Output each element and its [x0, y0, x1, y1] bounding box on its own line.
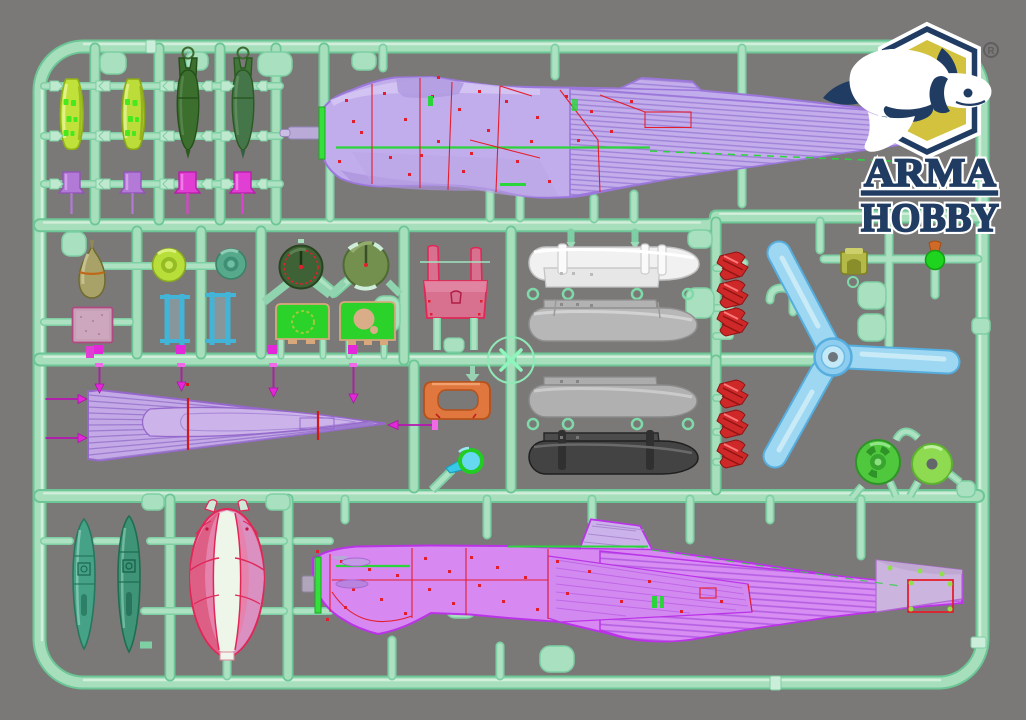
svg-text:HOBBY: HOBBY — [861, 195, 999, 240]
svg-text:ARMA: ARMA — [864, 150, 996, 195]
svg-text:R: R — [987, 46, 995, 57]
